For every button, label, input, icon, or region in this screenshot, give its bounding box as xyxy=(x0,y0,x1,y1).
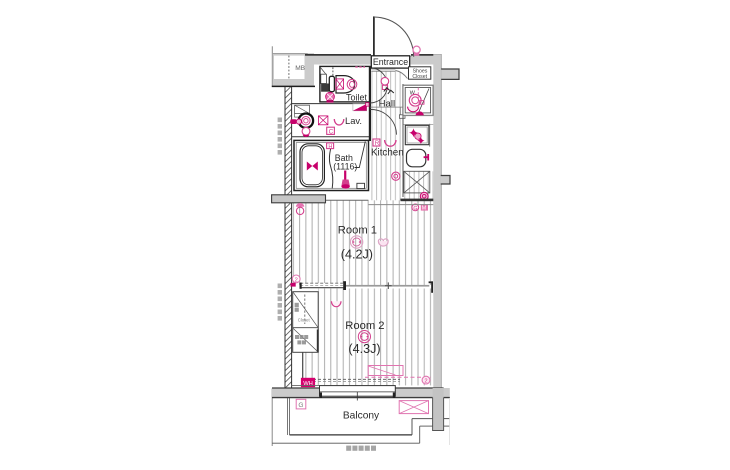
svg-text:G: G xyxy=(413,206,417,212)
svg-text:Kitchen: Kitchen xyxy=(371,147,404,158)
svg-text:(4.3J): (4.3J) xyxy=(348,342,380,356)
svg-text:R: R xyxy=(375,140,380,147)
svg-text:M: M xyxy=(422,206,427,212)
svg-text:Lav.: Lav. xyxy=(345,115,362,126)
svg-text:WH: WH xyxy=(303,381,313,387)
svg-text:H: H xyxy=(328,144,332,150)
svg-text:Entrance: Entrance xyxy=(373,57,408,67)
svg-text:MB: MB xyxy=(295,65,305,72)
svg-text:Room 2: Room 2 xyxy=(345,320,384,332)
svg-text:C: C xyxy=(329,128,334,135)
svg-text:Hall: Hall xyxy=(379,98,396,109)
svg-text:G: G xyxy=(298,402,303,409)
svg-text:(1116): (1116) xyxy=(333,162,357,172)
svg-text:Balcony: Balcony xyxy=(343,410,380,421)
svg-text:Room 1: Room 1 xyxy=(338,225,377,237)
svg-text:2: 2 xyxy=(424,379,427,385)
svg-text:Closet: Closet xyxy=(412,74,427,80)
svg-text:(4.2J): (4.2J) xyxy=(341,248,373,262)
svg-text:2: 2 xyxy=(295,278,298,284)
svg-text:Toilet: Toilet xyxy=(346,92,368,102)
svg-text:Closet: Closet xyxy=(298,318,311,323)
